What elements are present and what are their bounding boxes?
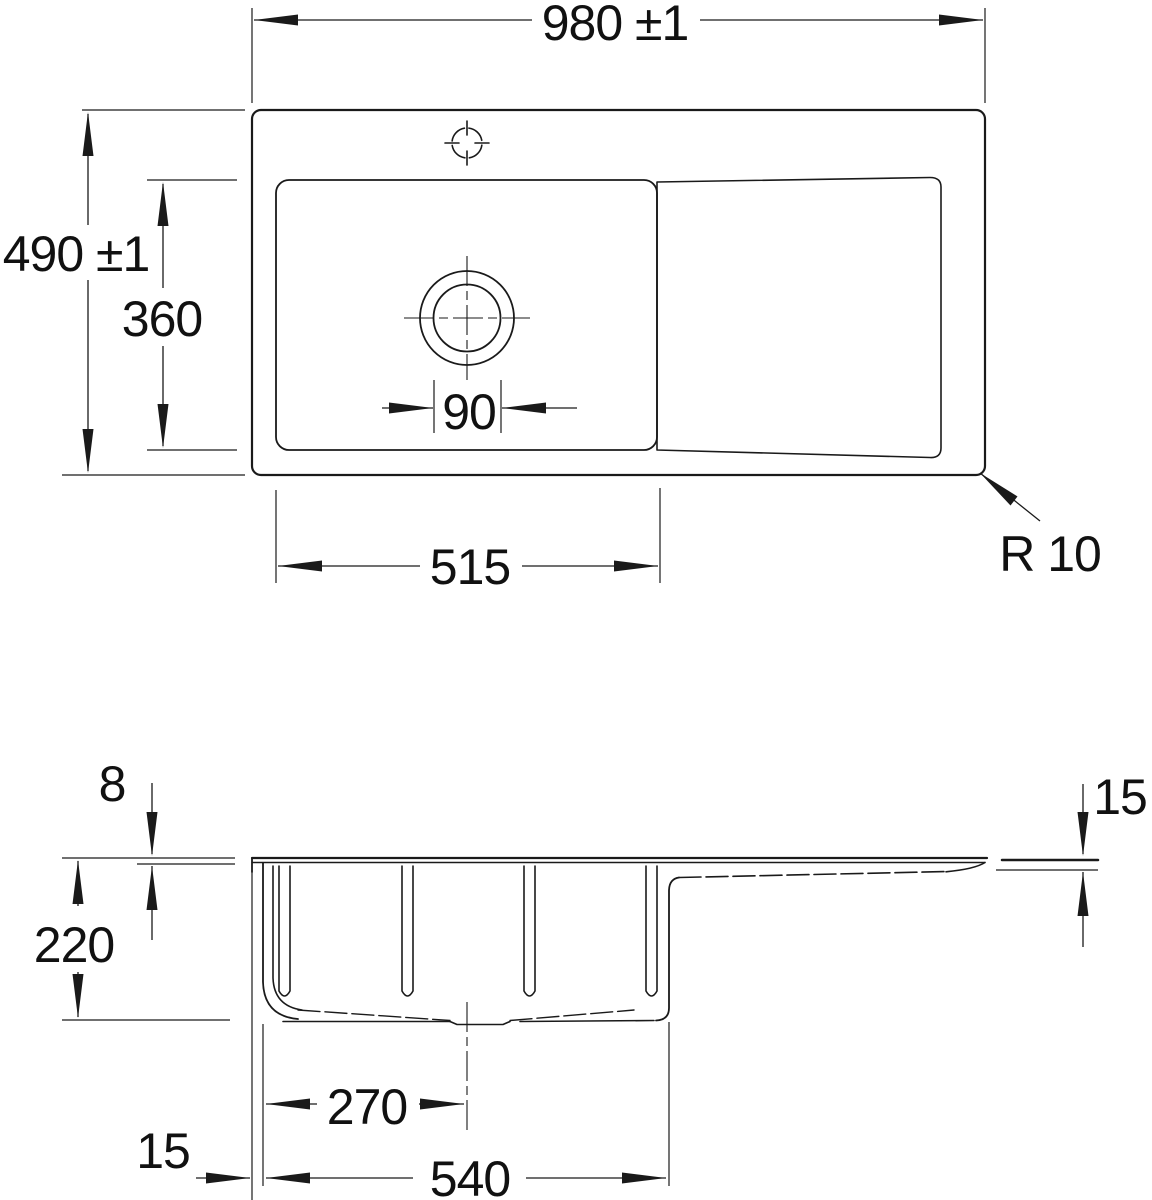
tap-hole-icon: [445, 121, 489, 165]
arrow-up: [147, 866, 158, 910]
dim-label-corner-radius: R 10: [999, 526, 1101, 582]
dim-label-bowl-front-to-back: 360: [122, 291, 202, 347]
dim-label-drainboard-edge-drop: 15: [1093, 769, 1147, 825]
dim-bowl-outer-length: 540: [266, 1151, 666, 1200]
technical-drawing-page: 980 ±1 490 ±1 360 90: [0, 0, 1152, 1200]
tap-hole-cross-ticks: [445, 121, 489, 165]
dim-label-edge-offset-left: 15: [136, 1123, 190, 1179]
arrow-up: [73, 860, 84, 904]
dim-drainboard-edge-drop: 15: [1078, 769, 1147, 947]
dim-rim-thickness: 8: [99, 756, 158, 940]
arrow-left: [278, 561, 322, 572]
section-view: 8 220 15 270 540: [34, 756, 1147, 1200]
dim-edge-offset-left: 15: [136, 1123, 250, 1184]
sink-technical-drawing: 980 ±1 490 ±1 360 90: [0, 0, 1152, 1200]
dim-label-drain-diameter: 90: [442, 384, 496, 440]
arrow-left: [266, 1173, 310, 1184]
arrow-leader: [980, 473, 1018, 506]
dim-drain-diameter: 90: [382, 380, 577, 440]
dim-bowl-length: 515: [276, 488, 660, 595]
arrow-right: [622, 1173, 666, 1184]
arrow-down: [73, 974, 84, 1018]
bowl-left-outer-wall: [263, 863, 298, 1019]
arrow-left: [266, 1099, 310, 1110]
arrow-right: [206, 1173, 250, 1184]
dim-bowl-depth: 220: [34, 860, 114, 1018]
dim-label-rim-thickness: 8: [99, 756, 126, 812]
dim-drain-center-offset: 270: [266, 1079, 464, 1135]
dim-corner-radius: R 10: [980, 473, 1101, 582]
arrow-right: [614, 561, 658, 572]
bowl-right-step-wall: [656, 878, 679, 1021]
sink-outline: [252, 110, 985, 475]
bowl-underside-right: [520, 1021, 654, 1022]
dim-label-bowl-length: 515: [430, 539, 510, 595]
arrow-up: [158, 182, 169, 226]
arrow-down: [147, 812, 158, 856]
drainboard-outline: [657, 178, 941, 458]
dim-overall-width: 980 ±1: [252, 0, 985, 103]
dim-bowl-front-to-back: 360: [122, 180, 237, 450]
arrow-up: [1078, 872, 1089, 916]
arrow-right: [389, 403, 433, 414]
arrow-left: [254, 15, 298, 26]
arrow-right: [939, 15, 983, 26]
dim-label-overall-depth: 490 ±1: [3, 226, 150, 282]
arrow-down: [83, 429, 94, 473]
arrow-right: [420, 1099, 464, 1110]
bowl-floor-slope-right: [510, 1010, 634, 1021]
drainboard-right-curve: [946, 863, 985, 872]
drain-recess: [450, 1022, 510, 1025]
plan-view: 980 ±1 490 ±1 360 90: [3, 0, 1101, 595]
arrow-up: [83, 112, 94, 156]
arrow-left: [502, 403, 546, 414]
drain-icon: [404, 256, 530, 380]
bowl-floor-slope-left: [298, 1010, 450, 1021]
bowl-left-inner-wall: [273, 866, 302, 1010]
dim-label-overall-width: 980 ±1: [542, 0, 689, 51]
bowl-internal-channels: [279, 866, 657, 996]
dim-label-bowl-depth: 220: [34, 917, 114, 973]
arrow-down: [1078, 812, 1089, 856]
drainboard-surface-line: [679, 872, 948, 878]
arrow-down: [158, 404, 169, 448]
dim-label-bowl-outer-length: 540: [430, 1151, 510, 1200]
dim-label-drain-center-offset: 270: [327, 1079, 407, 1135]
